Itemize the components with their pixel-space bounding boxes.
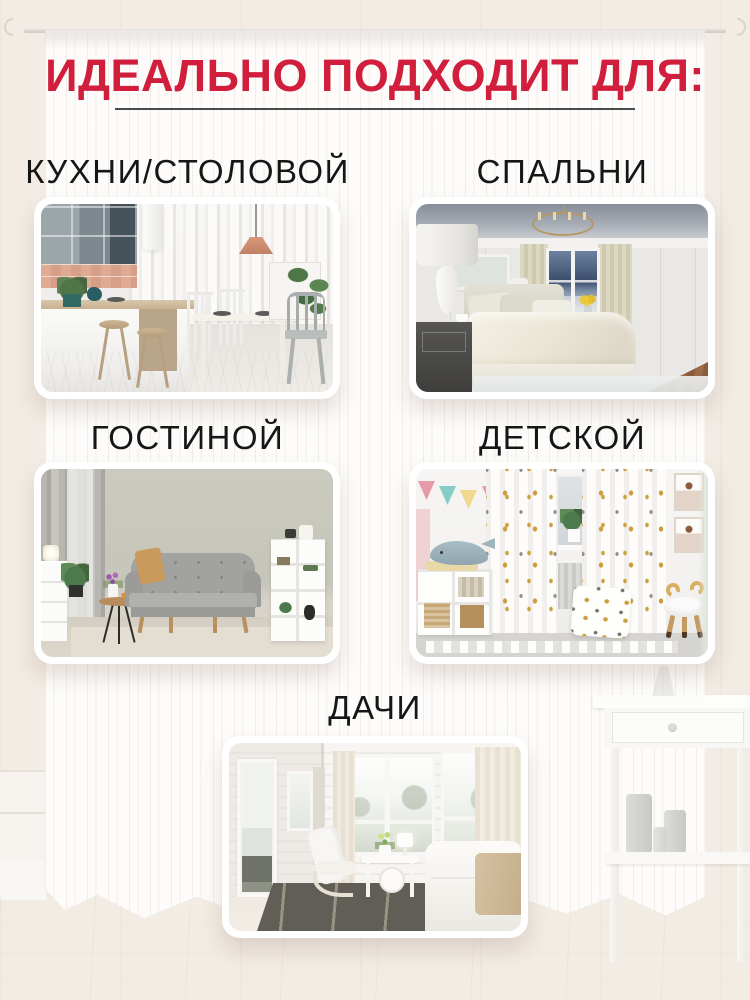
section-label-bedroom: СПАЛЬНИ: [375, 152, 750, 192]
duvet: [468, 312, 636, 368]
sofa-skirt: [131, 607, 255, 617]
bar-stool: [137, 328, 167, 337]
bunting-flag: [460, 490, 477, 509]
sofa-leg: [213, 616, 217, 633]
sofa-leg: [169, 616, 173, 633]
white-chair: [187, 292, 213, 352]
section-label-dacha: ДАЧИ: [0, 688, 750, 728]
play-mat: [426, 641, 678, 653]
table-lamp: [397, 833, 413, 847]
books: [277, 557, 290, 565]
small-window: [287, 771, 313, 831]
gray-chair-back: [287, 292, 325, 332]
stool-leg: [682, 615, 687, 638]
console-table-shelf: [606, 852, 750, 864]
kitchen-cabinets: [41, 204, 137, 264]
shelf-plant: [278, 601, 293, 613]
chandelier: [532, 212, 594, 236]
glass-door: [237, 759, 277, 897]
nightstand: [416, 322, 472, 392]
star-curtain-left: [486, 469, 558, 640]
plant-pot: [568, 529, 580, 542]
photo-living-room: [34, 462, 340, 664]
wainscot-panel: [0, 770, 46, 900]
plate: [107, 297, 125, 302]
dacha-scene: [229, 743, 521, 931]
teal-jug: [87, 287, 102, 301]
page-title: ИДЕАЛЬНО ПОДХОДИТ ДЛЯ:: [0, 50, 750, 102]
plant-pot: [63, 294, 81, 307]
books: [458, 577, 484, 597]
whale-plush-toy: [430, 541, 488, 565]
bunting-flag: [439, 486, 456, 505]
bunting-flag: [418, 481, 435, 500]
white-sheer: [67, 469, 93, 621]
side-table-leg: [118, 606, 120, 644]
camera-decor: [285, 529, 296, 538]
photo-kitchen-dining: [34, 197, 340, 399]
plant-pot: [69, 585, 83, 597]
tan-throw-blanket: [134, 547, 166, 585]
cup: [456, 314, 468, 322]
living-room-scene: [41, 469, 333, 657]
title-underline: [115, 108, 635, 110]
beige-throw: [475, 853, 521, 915]
tulip-vase: [108, 584, 118, 598]
product-infographic: ИДЕАЛЬНО ПОДХОДИТ ДЛЯ: КУХНИ/СТОЛОВОЙ СП…: [0, 0, 750, 1000]
storage-basket: [460, 605, 484, 628]
cube-shelf-right: [271, 539, 325, 641]
black-vase: [304, 605, 315, 620]
section-label-kids-room: ДЕТСКОЙ: [375, 418, 750, 458]
white-pendant-lamp: [143, 204, 163, 250]
gray-vase: [626, 794, 652, 852]
green-decor: [303, 565, 318, 571]
white-jug: [379, 845, 391, 856]
photo-bedroom: [409, 197, 715, 399]
windowsill-plant: [560, 509, 584, 531]
shelf-lamp: [299, 525, 313, 540]
coffee-table: [361, 855, 419, 863]
star-pillow: [570, 585, 631, 639]
bedroom-scene: [416, 204, 708, 392]
storage-basket: [424, 603, 450, 628]
green-edge-tint: [698, 469, 708, 657]
bedroom-rug: [474, 376, 708, 392]
pendant-cord: [255, 204, 257, 238]
wainscot-line: [0, 812, 46, 814]
photo-dacha: [222, 736, 528, 938]
photo-kids-room: [409, 462, 715, 664]
round-drum-table: [379, 867, 405, 893]
glowing-lamp: [43, 545, 59, 561]
large-lamp-shade: [416, 224, 478, 266]
section-label-living-room: ГОСТИНОЙ: [0, 418, 375, 458]
kitchen-backsplash: [41, 264, 137, 288]
plate: [213, 311, 231, 316]
kitchen-scene: [41, 204, 333, 392]
gray-vase: [653, 827, 667, 852]
section-label-kitchen-dining: КУХНИ/СТОЛОВОЙ: [0, 152, 375, 192]
kids-room-scene: [416, 469, 708, 657]
gray-vase: [664, 810, 686, 852]
bar-stool: [99, 320, 129, 329]
